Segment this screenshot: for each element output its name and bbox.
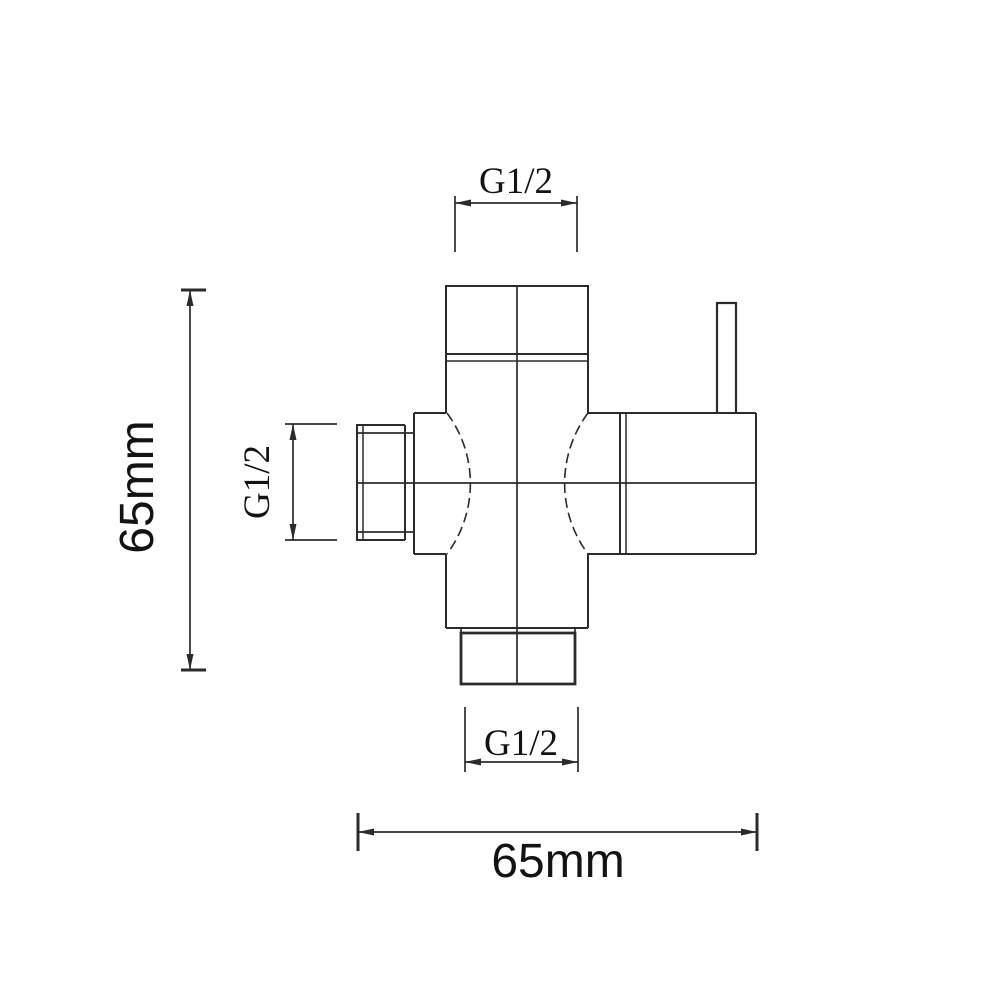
bottom-port bbox=[461, 628, 575, 684]
dimension-bottom-thread: G1/2 bbox=[465, 707, 578, 772]
dimension-height: 65mm bbox=[111, 290, 206, 670]
technical-drawing-canvas: G1/2 G1/2 65mm G1/2 bbox=[0, 0, 1000, 1000]
dimension-side-thread: G1/2 bbox=[237, 424, 337, 540]
bottom-dim-arrow-left bbox=[465, 759, 481, 766]
side-dim-arrow-top bbox=[290, 424, 297, 440]
centerlines bbox=[357, 286, 756, 684]
valve-body-group bbox=[357, 286, 756, 684]
width-label: 65mm bbox=[491, 835, 624, 888]
handle-lever-outline bbox=[717, 303, 736, 413]
height-dim-arrow-top bbox=[187, 290, 194, 306]
top-dim-arrow-left bbox=[455, 200, 471, 207]
side-dim-arrow-bottom bbox=[290, 524, 297, 540]
dimension-width: 65mm bbox=[358, 813, 757, 888]
height-dim-arrow-bottom bbox=[187, 654, 194, 670]
bottom-port-outline bbox=[461, 633, 575, 684]
height-label: 65mm bbox=[111, 420, 164, 553]
bottom-thread-label: G1/2 bbox=[484, 723, 558, 764]
top-thread-label: G1/2 bbox=[479, 161, 553, 202]
dimension-top-thread: G1/2 bbox=[455, 161, 577, 252]
bottom-dim-arrow-right bbox=[562, 759, 578, 766]
handle-lever bbox=[717, 303, 736, 413]
top-dim-arrow-right bbox=[561, 200, 577, 207]
diverter-valve-drawing: G1/2 G1/2 65mm G1/2 bbox=[0, 0, 1000, 1000]
width-dim-arrow-left bbox=[358, 829, 374, 836]
width-dim-arrow-right bbox=[741, 829, 757, 836]
side-thread-label: G1/2 bbox=[237, 445, 278, 519]
